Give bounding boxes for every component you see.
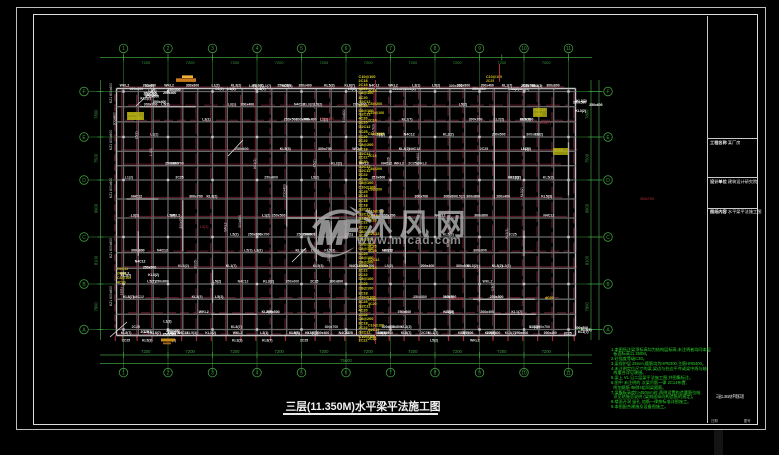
svg-text:www.mfcad.com: www.mfcad.com [356,233,462,247]
svg-text:M: M [317,214,346,251]
